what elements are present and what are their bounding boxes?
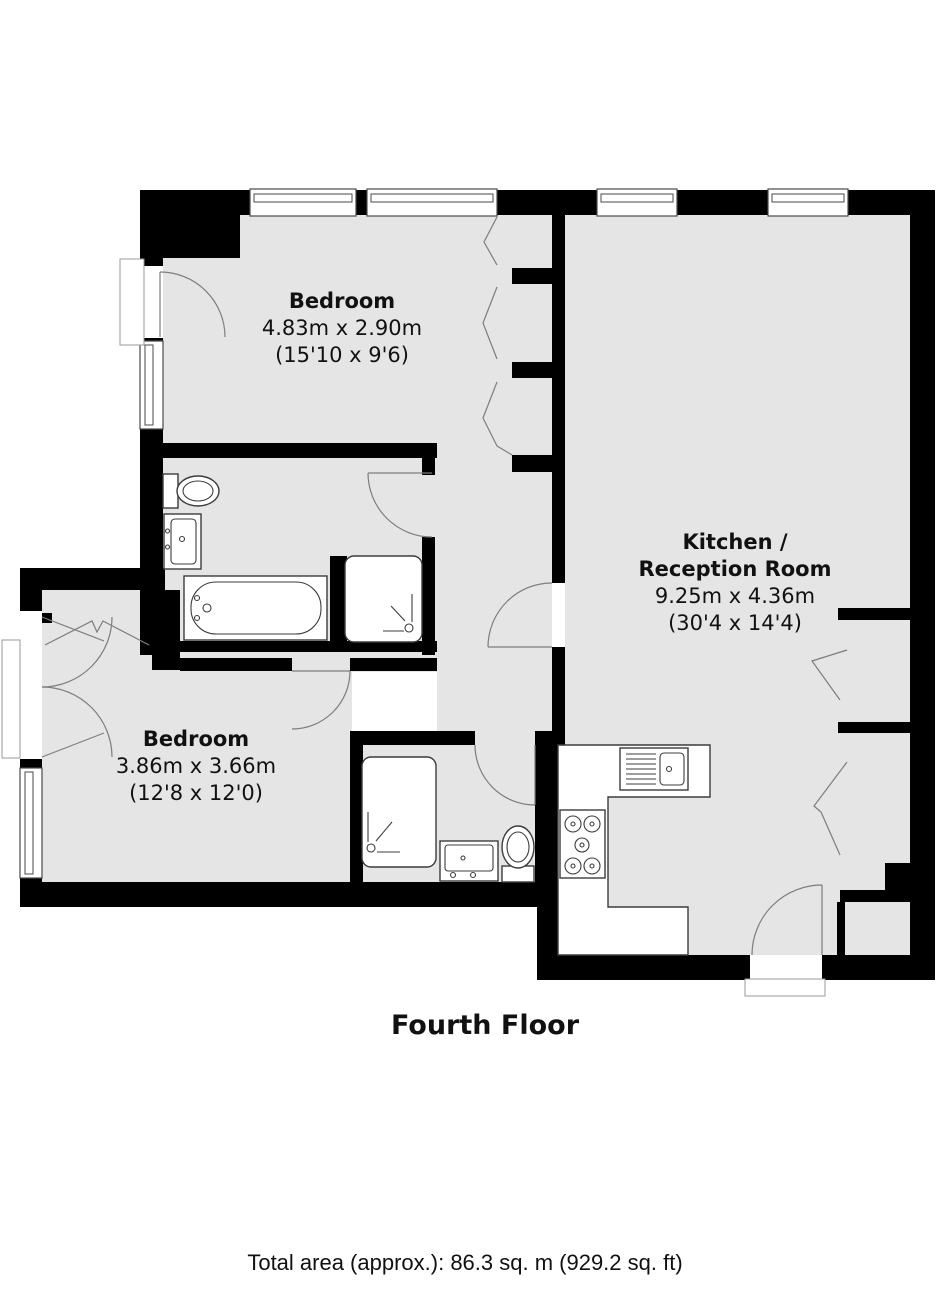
- wall-bedroom1-bottom: [162, 443, 437, 458]
- wall-bottom-right: [537, 955, 935, 980]
- floor-plan: Bedroom 4.83m x 2.90m (15'10 x 9'6) Kitc…: [0, 0, 940, 1301]
- wall-bedroom2-top-a: [180, 658, 292, 671]
- wall-divider-lower: [552, 647, 565, 745]
- wall-showerroom-top-a: [350, 731, 475, 745]
- floor-title: Fourth Floor: [391, 1010, 580, 1041]
- wall-showerroom-top-b: [535, 731, 565, 745]
- wall-bathroom-right-top: [422, 443, 435, 475]
- wardrobe-stub-2: [512, 362, 553, 378]
- window-top-2: [367, 189, 497, 216]
- washbasin: [164, 514, 201, 569]
- balcony-bedroom2: [2, 640, 20, 758]
- wall-bathroom-right-bottom: [422, 537, 435, 655]
- wardrobe2-stub-right: [142, 613, 152, 623]
- wall-bedroom2-topblock: [152, 590, 180, 670]
- reception-door-opening: [552, 583, 565, 647]
- wall-showerroom-left: [350, 731, 363, 882]
- toilet: [163, 474, 219, 508]
- cupboard-block: [885, 863, 911, 892]
- kitchen-name-line1: Kitchen /: [682, 530, 787, 554]
- hallway-floor: [437, 443, 565, 745]
- window-bedroom1-left: [140, 341, 163, 429]
- bedroom2-french-door-opening: [20, 611, 42, 759]
- kitchen-size-imperial: (30'4 x 14'4): [668, 611, 802, 635]
- washbasin-2: [440, 841, 498, 881]
- window-top-1: [250, 189, 356, 216]
- cupboard-stub-1: [838, 608, 911, 620]
- bedroom-1-name: Bedroom: [289, 289, 395, 313]
- bedroom-1-size-imperial: (15'10 x 9'6): [275, 343, 409, 367]
- cupboard-wall-bottom: [837, 902, 845, 955]
- shower: [345, 556, 422, 642]
- wall-right: [910, 190, 935, 980]
- floor-plan-page: Bedroom 4.83m x 2.90m (15'10 x 9'6) Kitc…: [0, 0, 940, 1301]
- toilet-2: [502, 826, 534, 882]
- total-area-text: Total area (approx.): 86.3 sq. m (929.2 …: [247, 1250, 682, 1275]
- bedroom-2-name: Bedroom: [143, 727, 249, 751]
- entrance-door-opening: [750, 955, 822, 980]
- window-top-3: [597, 189, 677, 216]
- cupboard-stub-2: [838, 722, 911, 733]
- wall-bottom-left: [20, 882, 562, 907]
- balcony-bedroom1: [120, 259, 144, 345]
- window-top-4: [768, 189, 848, 216]
- bedroom-2-size-metric: 3.86m x 3.66m: [116, 754, 276, 778]
- wall-bedroom2-top-b: [350, 658, 437, 671]
- shower-2: [362, 757, 436, 867]
- window-bedroom2-left: [20, 768, 42, 878]
- kitchen-sink: [620, 748, 688, 790]
- wall-divider-upper: [552, 215, 565, 583]
- bathtub: [184, 576, 327, 640]
- hob: [560, 810, 605, 878]
- kitchen-name-line2: Reception Room: [639, 557, 832, 581]
- wardrobe-stub-1: [512, 268, 553, 284]
- bedroom-1-size-metric: 4.83m x 2.90m: [262, 316, 422, 340]
- entrance-step: [745, 979, 825, 996]
- kitchen-size-metric: 9.25m x 4.36m: [655, 584, 815, 608]
- wall-showerroom-right: [535, 745, 558, 882]
- bedroom-2-size-imperial: (12'8 x 12'0): [129, 781, 263, 805]
- wardrobe-stub-3: [512, 455, 560, 472]
